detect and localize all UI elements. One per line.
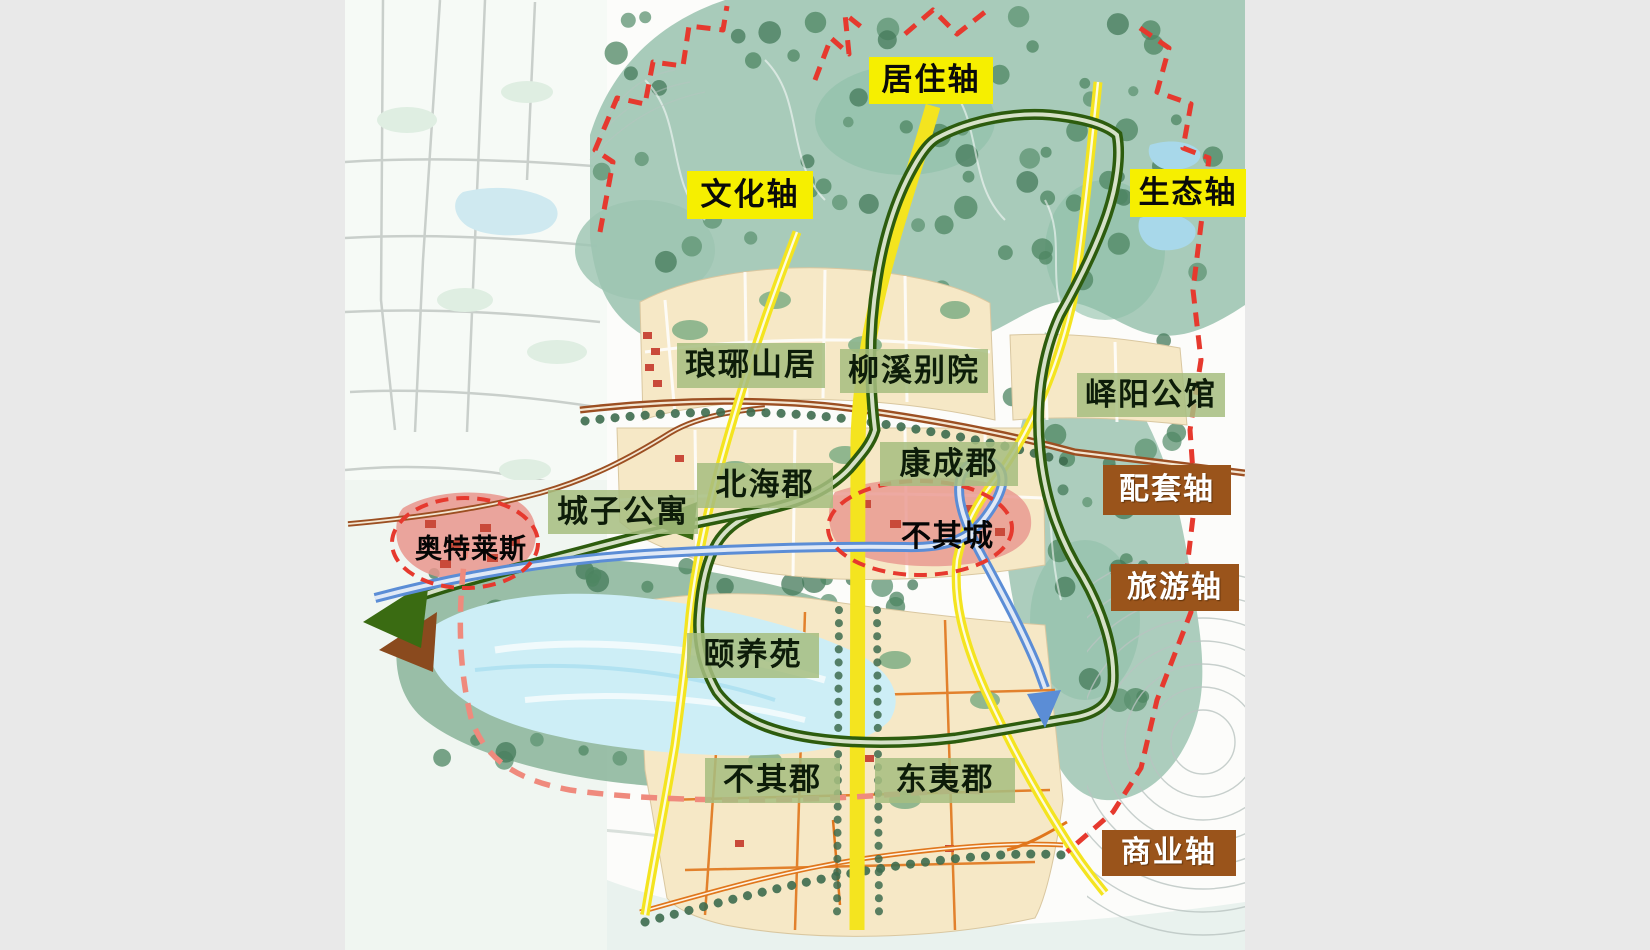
district-label-kangcheng-jun: 康成郡 [880, 442, 1018, 486]
district-label-yiyang-yuan: 颐养苑 [687, 633, 819, 678]
axis-label-tourism: 旅游轴 [1111, 564, 1239, 611]
axis-label-ecology: 生态轴 [1130, 169, 1246, 217]
district-label-chengzi-gongyu: 城子公寓 [548, 490, 698, 534]
axis-label-commerce: 商业轴 [1102, 830, 1236, 876]
district-label-dongyi-jun: 东夷郡 [875, 758, 1015, 803]
zone-label-outlets: 奥特莱斯 [415, 536, 527, 563]
axis-label-residential: 居住轴 [869, 57, 993, 104]
master-plan-map: 居住轴 文化轴 生态轴 配套轴 旅游轴 商业轴 琅琊山居 柳溪别院 峄阳公馆 北… [345, 0, 1245, 950]
district-label-liuxi-bieyuan: 柳溪别院 [840, 349, 988, 393]
district-label-buqi-jun: 不其郡 [705, 758, 840, 803]
zone-label-buqi-cheng: 不其城 [901, 522, 994, 552]
axis-label-supporting: 配套轴 [1103, 465, 1231, 515]
axis-label-culture: 文化轴 [687, 171, 813, 219]
district-label-langya-shanju: 琅琊山居 [677, 343, 825, 388]
district-label-beihai-jun: 北海郡 [697, 463, 833, 508]
planning-map-page: 居住轴 文化轴 生态轴 配套轴 旅游轴 商业轴 琅琊山居 柳溪别院 峄阳公馆 北… [0, 0, 1650, 950]
district-label-yiyang-gongguan: 峄阳公馆 [1077, 373, 1225, 417]
